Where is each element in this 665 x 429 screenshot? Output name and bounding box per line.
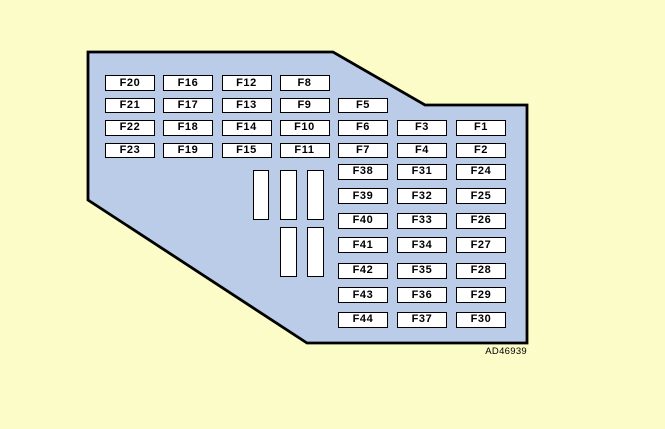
fuse-slot-F14: F14 [222, 120, 272, 136]
fuse-slot-F17: F17 [163, 98, 213, 114]
fuse-slot-F21: F21 [105, 98, 155, 114]
fuse-slot-F10: F10 [280, 120, 330, 136]
fuse-slot-F36: F36 [397, 287, 447, 303]
fuse-slot-F11: F11 [280, 143, 330, 159]
fuse-slot-F26: F26 [456, 213, 506, 229]
fuse-slot-F23: F23 [105, 143, 155, 159]
fuse-slot-F43: F43 [338, 287, 388, 303]
fuse-slot-F22: F22 [105, 120, 155, 136]
fuse-slot-F40: F40 [338, 213, 388, 229]
fuse-slot-F6: F6 [338, 120, 388, 136]
blank-fuse-slot [280, 227, 297, 277]
fuse-slot-F2: F2 [456, 143, 506, 159]
fuse-slot-F34: F34 [397, 237, 447, 253]
fuse-slot-F31: F31 [397, 164, 447, 180]
fuse-slot-F8: F8 [280, 75, 330, 91]
fuse-slot-F44: F44 [338, 312, 388, 328]
fuse-slot-F27: F27 [456, 237, 506, 253]
figure-code: AD46939 [449, 346, 527, 357]
fuse-slot-F13: F13 [222, 98, 272, 114]
fuse-slot-F42: F42 [338, 263, 388, 279]
fuse-slot-F20: F20 [105, 75, 155, 91]
fuse-slot-F18: F18 [163, 120, 213, 136]
blank-fuse-slot [307, 170, 324, 220]
blank-fuse-slot [253, 170, 270, 220]
fuse-slot-F19: F19 [163, 143, 213, 159]
fuse-slot-F15: F15 [222, 143, 272, 159]
fuse-slot-F32: F32 [397, 188, 447, 204]
fuse-slot-F35: F35 [397, 263, 447, 279]
blank-fuse-slot [307, 227, 324, 277]
fuse-slot-F38: F38 [338, 164, 388, 180]
fuse-slot-F7: F7 [338, 143, 388, 159]
fuse-slot-F29: F29 [456, 287, 506, 303]
fuse-slot-F25: F25 [456, 188, 506, 204]
fuse-slot-F41: F41 [338, 237, 388, 253]
fuse-slot-F4: F4 [397, 143, 447, 159]
fuse-slot-F28: F28 [456, 263, 506, 279]
fuse-box-diagram: F20F16F12F8F21F17F13F9F5F22F18F14F10F6F3… [0, 0, 665, 429]
fuse-slot-F24: F24 [456, 164, 506, 180]
fuse-slot-F9: F9 [280, 98, 330, 114]
fuse-slot-F16: F16 [163, 75, 213, 91]
fuse-panel-outline [0, 0, 665, 429]
fuse-slot-F12: F12 [222, 75, 272, 91]
fuse-slot-F1: F1 [456, 120, 506, 136]
fuse-slot-F33: F33 [397, 213, 447, 229]
fuse-slot-F37: F37 [397, 312, 447, 328]
fuse-slot-F3: F3 [397, 120, 447, 136]
fuse-slot-F39: F39 [338, 188, 388, 204]
fuse-slot-F30: F30 [456, 312, 506, 328]
blank-fuse-slot [280, 170, 297, 220]
fuse-slot-F5: F5 [338, 98, 388, 114]
